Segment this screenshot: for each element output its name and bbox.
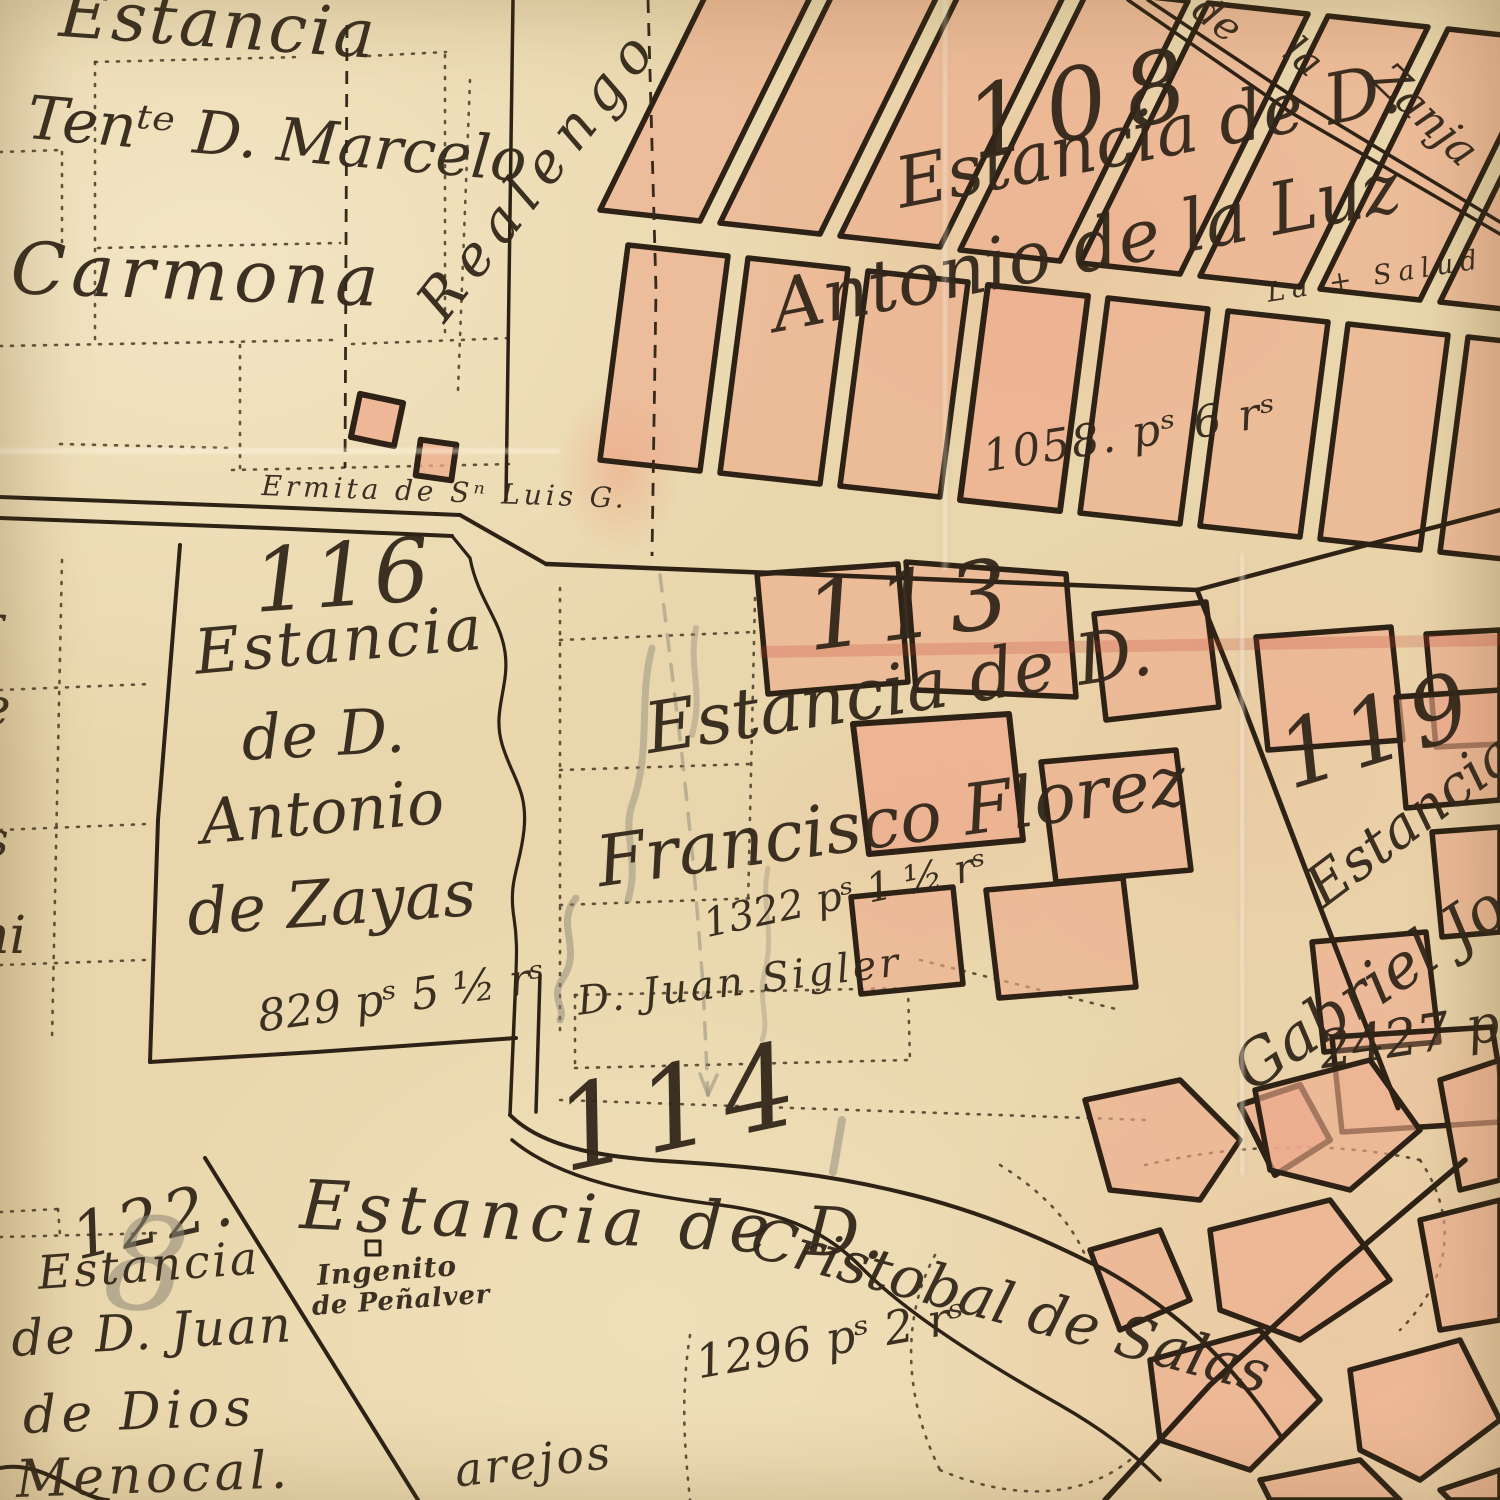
estate-122-label-2: de D. Juan <box>10 1299 294 1364</box>
parcel <box>1320 324 1448 550</box>
edge-fragment: s <box>0 816 9 864</box>
estate-122-label-1: Estancia <box>36 1234 261 1295</box>
antique-map: Estancia Tenᵗᵉ D. Marcelo Carmona Realen… <box>0 0 1500 1500</box>
edge-fragment: ni <box>0 910 26 962</box>
edge-fragment: r <box>0 600 4 646</box>
parcel <box>1420 1200 1500 1330</box>
parcel <box>1210 1200 1390 1340</box>
estate-122-label-4: Menocal. <box>15 1444 292 1500</box>
edge-fragment: e <box>0 682 11 734</box>
parcel <box>960 285 1088 511</box>
parcel <box>1260 1460 1400 1500</box>
parcel <box>600 245 728 471</box>
estate-116-label-4: de Zayas <box>185 862 478 946</box>
chapel-square <box>351 394 403 446</box>
estate-carmona-label-3: Carmona <box>9 232 385 317</box>
parcel <box>986 878 1136 998</box>
parcel <box>1440 1470 1500 1500</box>
parcel <box>1350 1340 1500 1480</box>
estate-122-label-3: de Dios <box>22 1382 257 1442</box>
parcel <box>1440 337 1500 563</box>
parcel <box>1085 1080 1240 1200</box>
estate-116-label-2: de D. <box>240 699 406 769</box>
